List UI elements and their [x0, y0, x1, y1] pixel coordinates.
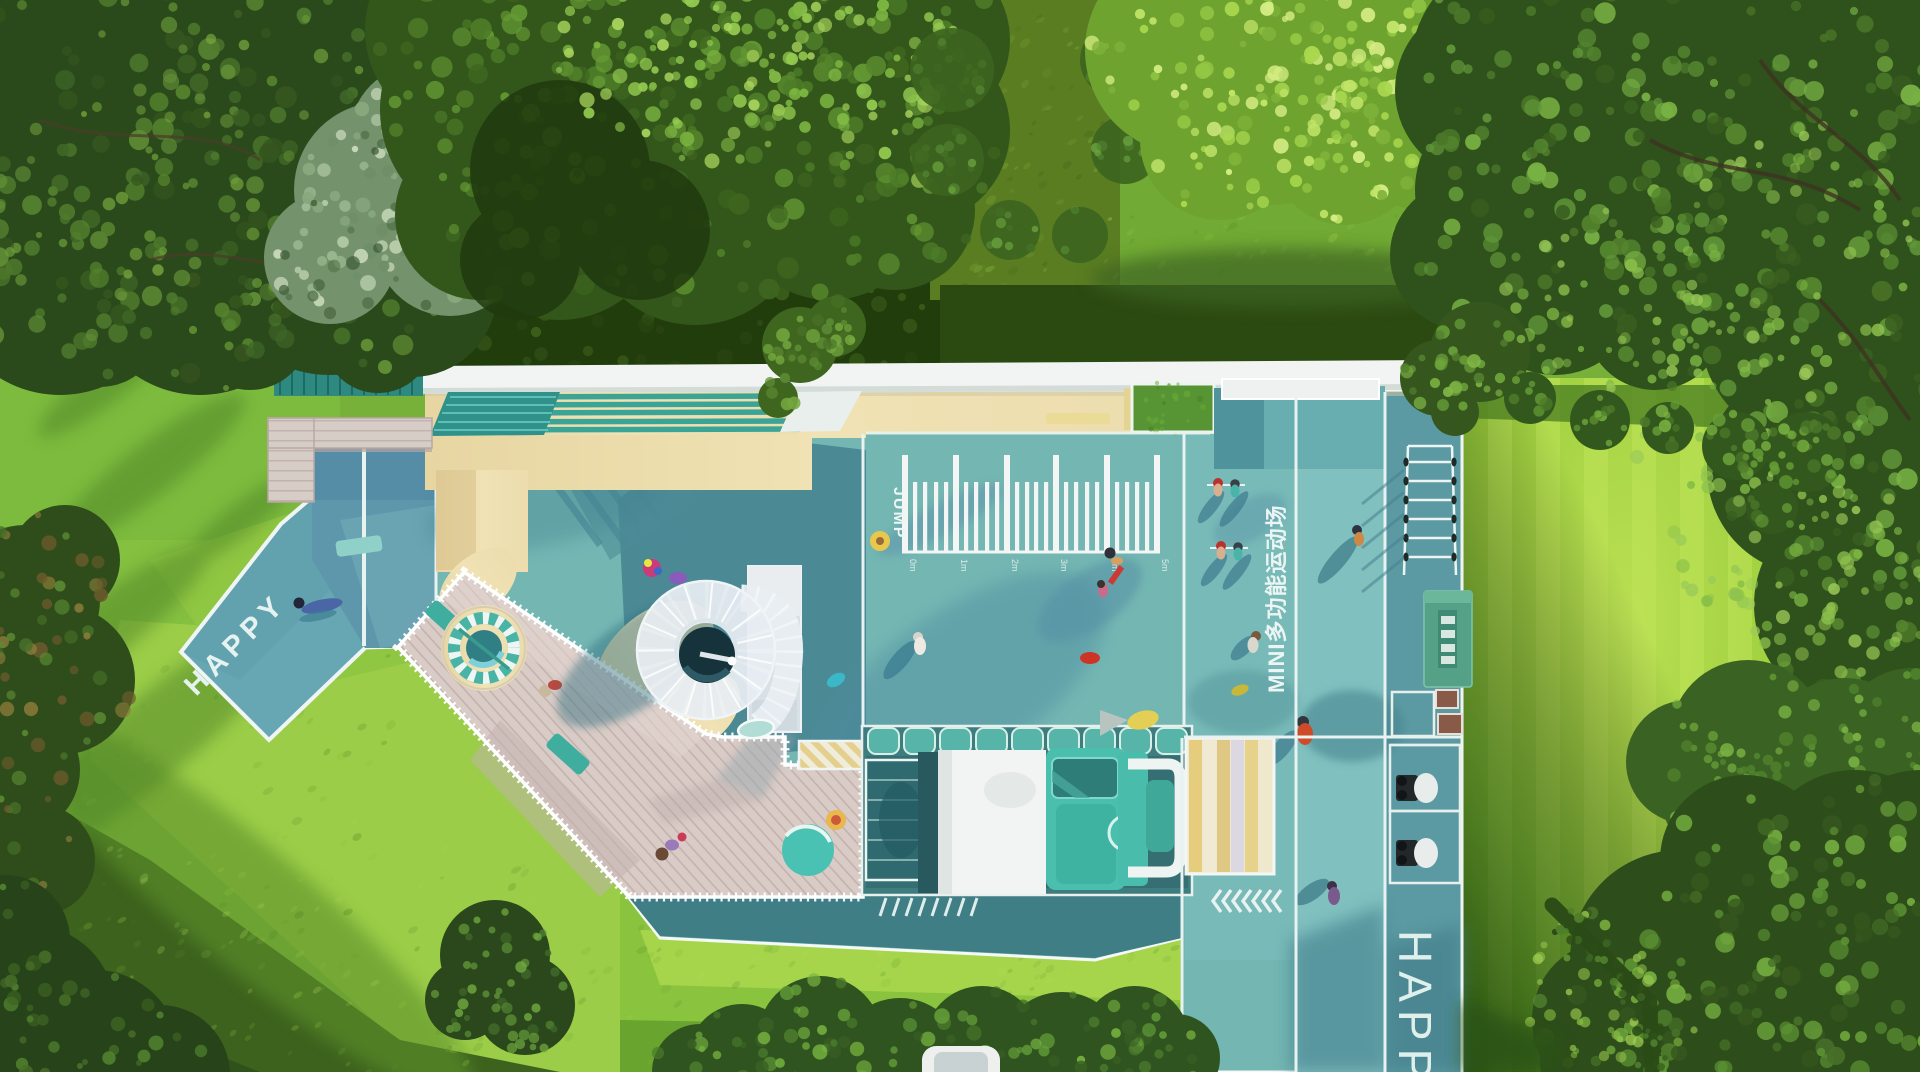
svg-text:2m: 2m — [1010, 559, 1020, 572]
svg-text:3m: 3m — [1059, 559, 1069, 572]
svg-text:0m: 0m — [908, 559, 918, 572]
svg-text:1m: 1m — [959, 559, 969, 572]
svg-text:HAPPY: HAPPY — [1389, 930, 1441, 1072]
svg-text:MINI多功能运动场: MINI多功能运动场 — [1264, 505, 1289, 693]
svg-text:JUMP: JUMP — [890, 487, 907, 539]
svg-text:5m: 5m — [1160, 559, 1170, 572]
